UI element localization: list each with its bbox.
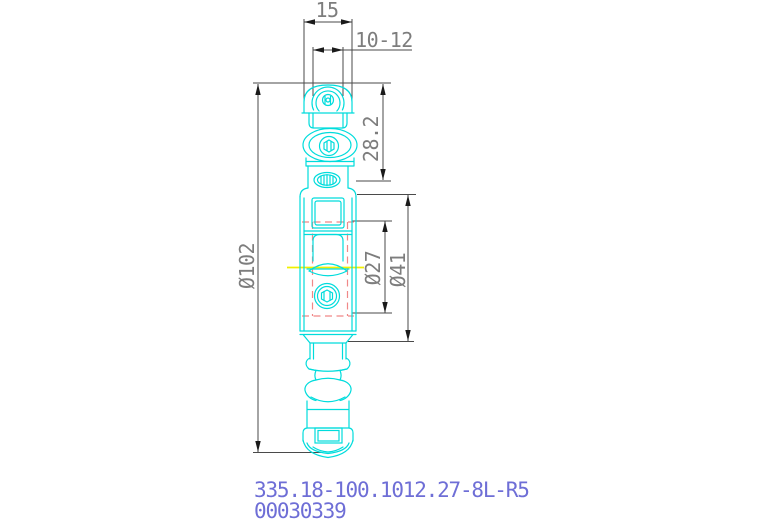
- dimension-lines: [253, 19, 416, 453]
- title-block: 335.18-100.1012.27-8L-R5 00030339: [254, 480, 529, 522]
- dimension-label-dia41: Ø41: [388, 253, 408, 288]
- dimension-label-28-2: 28.2: [361, 116, 381, 162]
- part-number-text: 335.18-100.1012.27-8L-R5: [254, 480, 529, 501]
- drawing-number-text: 00030339: [254, 501, 529, 522]
- dimension-label-dia27: Ø27: [363, 251, 383, 286]
- dimension-label-15: 15: [315, 0, 338, 20]
- technical-drawing-canvas: 15 10-12 28.2 Ø102 Ø27 Ø41 335.18-100.10…: [0, 0, 767, 523]
- dimension-label-dia102: Ø102: [237, 243, 257, 289]
- dimension-arrows: [255, 19, 410, 452]
- part-outline: [300, 85, 357, 458]
- dimension-label-10-12: 10-12: [355, 30, 413, 50]
